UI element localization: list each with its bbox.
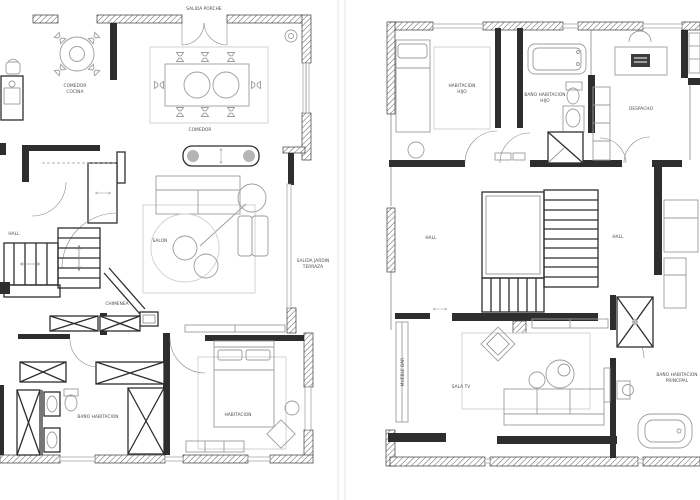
kitchen-counter [1,59,23,120]
label-salida-jardin-2: TERRAZA [302,264,323,270]
exterior-walls-right [386,22,700,466]
label-salida-jardin-1: SALIDA JARDIN [297,258,330,264]
label-habitacion-hijo-1: HABITACION [448,83,475,89]
kitchen-round-table [54,32,99,75]
windows-right [391,24,682,463]
sala-tv-furniture [396,319,617,444]
sideboard [183,146,259,166]
label-hall-right: HALL [612,234,624,240]
label-chimenea: CHIMENEA [105,301,128,307]
image-seam [338,0,345,500]
label-bano-habitacion: BAÑO HABITACION [77,413,118,420]
label-bano-principal-2: PRINCIPAL [666,378,689,384]
label-sala-tv: SALA TV [452,384,471,390]
label-comedor-cocina-2: COCINA [66,89,83,95]
floor-plan-left: SALIDA PORCHE COMEDOR COCINA COMEDOR HAL… [0,6,329,463]
label-bano-hijo-1: BAÑO HABITACION [524,91,565,98]
bedroom-hijo-furniture [396,40,490,158]
bedroom-ground-floor [186,341,299,452]
hall-closets [664,200,698,308]
dining-table [150,47,268,123]
label-salon: SALON [153,238,168,244]
label-bano-hijo-2: HIJO [540,98,550,104]
label-comedor-cocina-1: COMEDOR [64,83,87,89]
floor-plan-screenshot: SALIDA PORCHE COMEDOR COCINA COMEDOR HAL… [0,0,700,500]
label-habitacion-hijo-2: HIJO [457,89,467,95]
floor-plans-canvas: SALIDA PORCHE COMEDOR COCINA COMEDOR HAL… [0,0,700,500]
stairs-first-floor [433,190,598,312]
salon-furniture [42,30,297,332]
label-salida-porche: SALIDA PORCHE [186,6,222,12]
label-hall-left: HALL [425,235,437,241]
label-hall-ground: HALL [8,231,20,237]
label-bano-principal-1: BAÑO HABITACION [656,371,697,378]
label-habitacion: HABITACION [224,412,251,418]
label-despacho: DESPACHO [629,106,654,112]
label-mueble-bar: MUEBLE BAR [400,358,406,386]
bathroom-hijo [528,44,586,163]
label-comedor: COMEDOR [189,127,212,133]
floor-plan-right: HABITACION HIJO BAÑO HABITACION HIJO DES… [386,22,700,466]
